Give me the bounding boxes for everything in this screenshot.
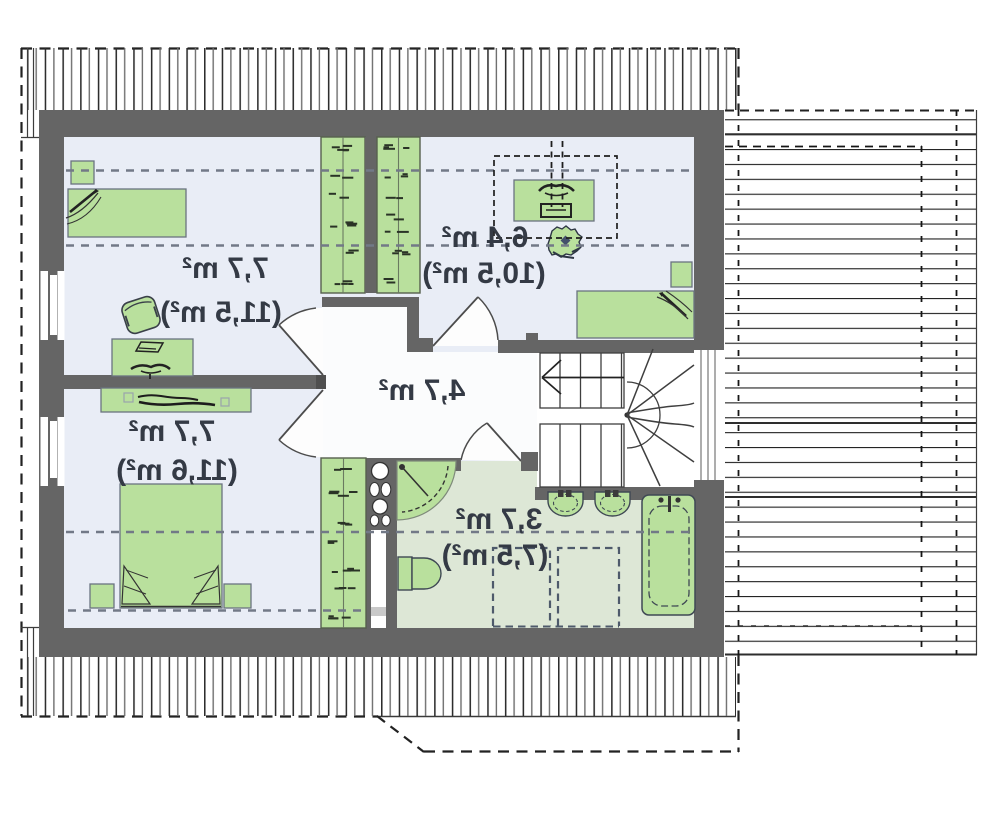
svg-text:(10,5 m²): (10,5 m²)	[422, 257, 545, 290]
svg-text:7,7 m²: 7,7 m²	[182, 252, 269, 285]
svg-text:(7,5 m²): (7,5 m²)	[442, 539, 549, 572]
svg-text:(11,6 m²): (11,6 m²)	[116, 454, 238, 487]
svg-text:6,4 m²: 6,4 m²	[442, 221, 529, 254]
svg-text:(11,5 m²): (11,5 m²)	[160, 296, 282, 329]
svg-text:4,7 m²: 4,7 m²	[379, 374, 466, 407]
svg-text:7,7 m²: 7,7 m²	[129, 415, 216, 448]
svg-text:3,7 m²: 3,7 m²	[456, 503, 543, 536]
